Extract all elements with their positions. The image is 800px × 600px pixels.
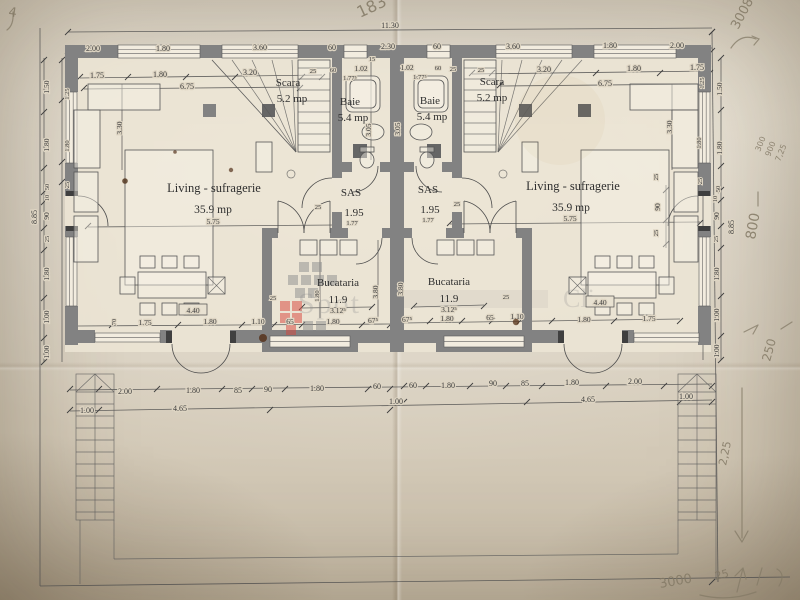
room-area-bucataria-right: 11.9 [440, 293, 459, 305]
dim: 25 [450, 66, 457, 73]
handwritten-note: 250 [759, 337, 778, 363]
kitchen-bay-window [270, 336, 350, 347]
dim-tick [282, 386, 288, 392]
handwritten-note: 800 [743, 212, 763, 241]
sofa [88, 84, 160, 110]
chair [595, 256, 610, 268]
dim-tick [401, 383, 407, 389]
dim: 1.80 [603, 41, 617, 50]
dim-tick [96, 386, 102, 392]
dim: 50 [715, 186, 722, 193]
dim: 6.75 [598, 79, 612, 88]
dim: 25 [454, 201, 461, 208]
dim: 67⁵ [402, 315, 413, 324]
dim: 1.80 [696, 137, 703, 148]
dim: 25 [310, 68, 317, 75]
dim: 1.77 [422, 217, 434, 224]
dim-tick [67, 407, 73, 413]
dim: 1.75 [690, 63, 704, 72]
dim: 4.65 [173, 404, 187, 413]
dim-tick [603, 383, 609, 389]
dim: 1.02 [400, 63, 413, 72]
dim-tick [219, 386, 225, 392]
dim: 1.25 [699, 77, 706, 88]
dim: 25 [478, 67, 485, 74]
dim-tick [96, 407, 102, 413]
dim: 5.75 [206, 217, 219, 226]
dim: 1.00 [42, 310, 51, 323]
chair [639, 256, 654, 268]
chair [140, 303, 155, 315]
dim-tick [67, 386, 73, 392]
room-label-baie-left: Baie [340, 96, 360, 108]
dim: 25 [503, 294, 510, 301]
room-label-scara-right: Scara [480, 76, 505, 88]
dim: 25 [44, 236, 51, 243]
dim: 1.80 [156, 44, 170, 53]
toilet-tank [360, 147, 374, 152]
chair [140, 256, 155, 268]
dim: 3.60 [253, 43, 267, 52]
window [699, 237, 710, 306]
dim: 90 [42, 212, 51, 220]
discoloration [515, 75, 605, 165]
dim: 1.77⁵ [413, 74, 427, 81]
room-area-scara-left: 5.2 mp [277, 93, 308, 105]
dim: 2.00 [118, 387, 132, 396]
dim-tick [709, 579, 715, 585]
dim: 1.50 [715, 82, 724, 95]
dim: 1.80 [203, 317, 216, 326]
kitchen-counter [437, 240, 454, 255]
dim: 85 [234, 386, 242, 395]
room-area-living-right: 35.9 mp [552, 202, 590, 214]
dim: 2.00 [628, 377, 642, 386]
stain [122, 178, 128, 184]
dim: 1.00 [712, 308, 721, 321]
dim: 3.80 [396, 282, 405, 295]
sink [410, 124, 432, 140]
dim: 1.80 [441, 381, 455, 390]
dim: 60 [328, 43, 336, 52]
dim: 3.12⁵ [441, 305, 457, 314]
room-label-scara-left: Scara [276, 77, 301, 89]
toilet [360, 152, 374, 168]
floor-plan-drawing: Spot Cli Living - sufragerie 35.9 mp Liv… [0, 0, 800, 600]
dim-tick [524, 399, 530, 405]
dim: 2.00 [670, 41, 684, 50]
dim: 1.00 [389, 397, 403, 406]
room-area-baie-left: 5.4 mp [338, 112, 369, 124]
dim: 1.80 [440, 314, 453, 323]
kitchen-bay-window [444, 336, 524, 347]
cabinet [674, 172, 698, 212]
chair [120, 277, 135, 294]
window [344, 45, 367, 58]
dim: 1.02 [354, 64, 367, 73]
room-label-living-right: Living - sufragerie [526, 179, 620, 193]
dim: 2.30 [381, 42, 395, 51]
dim: 3.30 [665, 120, 674, 133]
dining-table [138, 272, 206, 298]
dim: 60 [435, 65, 442, 72]
dim: 5.75 [563, 214, 576, 223]
cabinet [674, 216, 698, 262]
dim: 85 [521, 379, 529, 388]
stain [513, 319, 519, 325]
dim: 1.80 [153, 70, 167, 79]
dim-tick [249, 386, 255, 392]
chair [659, 277, 674, 294]
dim: 25 [270, 295, 277, 302]
room-area-living-left: 35.9 mp [194, 204, 232, 216]
dim: 1.80 [326, 317, 339, 326]
window [95, 333, 160, 342]
dim: 8.85 [727, 220, 736, 234]
dim: 70 [111, 319, 118, 326]
dim: 1.50 [42, 80, 51, 93]
room-label-bucataria-left: Bucataria [317, 277, 359, 289]
handwritten-note: 3008 [728, 0, 757, 32]
dim: 3.30 [115, 121, 124, 134]
dim: 1.80 [42, 138, 51, 151]
dim: 50 [44, 184, 51, 191]
dim: 67⁵ [368, 316, 379, 325]
toilet [420, 152, 434, 168]
dim: 1.80 [715, 141, 724, 154]
dim: 1.80 [314, 290, 321, 301]
dim: 8.85 [30, 210, 39, 224]
dim: 4.65 [581, 395, 595, 404]
dim: 1.80 [310, 384, 324, 393]
dim: 4.40 [186, 306, 199, 315]
chair [184, 256, 199, 268]
sofa [630, 84, 698, 110]
handwritten-note: 183 [354, 0, 390, 22]
room-area-sas-left: 1.95 [344, 207, 364, 219]
dim: 10 [44, 195, 51, 202]
dim: 60 [433, 42, 441, 51]
dim: 1.00 [80, 406, 94, 415]
dim: 65 [286, 317, 294, 326]
dim: 3.20 [537, 65, 551, 74]
cabinet [74, 216, 98, 262]
dim: 1.75 [90, 71, 104, 80]
dim: 65 [486, 313, 494, 322]
dim: 90 [264, 385, 272, 394]
dim: 60 [330, 67, 337, 74]
dim: 1.80 [577, 315, 590, 324]
dim-tick [423, 383, 429, 389]
room-label-sas-right: SAS [418, 184, 438, 196]
dim: 60 [373, 382, 381, 391]
dim: 90 [653, 203, 662, 211]
room-label-sas-left: SAS [341, 187, 361, 199]
chair [162, 303, 177, 315]
room-label-bucataria-right: Bucataria [428, 276, 470, 288]
window [699, 92, 710, 163]
sofa [672, 110, 698, 168]
window [634, 333, 699, 342]
dim: 1.80 [42, 267, 51, 280]
dim: 1.75 [642, 314, 655, 323]
kitchen-counter [320, 240, 337, 255]
dim: 1.00 [679, 392, 693, 401]
room-area-scara-right: 5.2 mp [477, 92, 508, 104]
dim: 3.05 [393, 122, 402, 135]
handwritten-note: 2,25 [716, 440, 734, 467]
dim: 15 [369, 56, 376, 63]
toilet-tank [420, 147, 434, 152]
room-area-baie-right: 5.4 mp [417, 111, 448, 123]
dim: 3.80 [371, 285, 380, 298]
dim: 4.40 [593, 298, 606, 307]
dim: 1.25 [64, 88, 71, 99]
kitchen-counter [300, 240, 317, 255]
dim: 25 [315, 204, 322, 211]
kitchen-counter [477, 240, 494, 255]
dim: 3.12⁵ [330, 306, 346, 315]
dim: 90 [489, 379, 497, 388]
cabinet [74, 172, 98, 212]
watermark-blur [390, 290, 548, 308]
stain [173, 150, 177, 154]
kitchen-counter [340, 240, 357, 255]
dim: 1.80 [712, 267, 721, 280]
room-area-sas-right: 1.95 [420, 204, 440, 216]
dim: 1.80 [186, 386, 200, 395]
sofa [74, 110, 100, 168]
dim: 3.60 [506, 42, 520, 51]
dim: 60 [409, 381, 417, 390]
handwritten-note: 3000 [658, 571, 693, 592]
floor-plan-photo: Spot Cli Living - sufragerie 35.9 mp Liv… [0, 0, 800, 600]
dim: 3.05 [364, 123, 373, 136]
dim: 1.75 [138, 318, 151, 327]
dim: 1.10 [251, 317, 264, 326]
dim-tick [661, 383, 667, 389]
dim-tick [387, 407, 393, 413]
dim: 1.77⁵ [343, 75, 357, 82]
chair [617, 256, 632, 268]
dim: 90 [712, 212, 721, 220]
dim: 25 [713, 236, 720, 243]
dim: 1.77 [346, 220, 358, 227]
kitchen-counter [457, 240, 474, 255]
dim: 25 [653, 174, 660, 181]
dim: 1.80 [565, 378, 579, 387]
stair-banister [256, 142, 272, 172]
dim: 1.00 [712, 344, 721, 357]
dim: 25 [64, 182, 71, 189]
dim: 1.80 [627, 64, 641, 73]
room-label-living-left: Living - sufragerie [167, 181, 261, 195]
room-label-baie-right: Baie [420, 95, 440, 107]
handwritten-note: 25 [713, 567, 730, 583]
room-area-bucataria-left: 11.9 [329, 294, 348, 306]
chair [617, 303, 632, 315]
dim: 3.20 [243, 68, 257, 77]
dim: 11.30 [381, 21, 399, 30]
stain [229, 168, 233, 172]
dining-table [588, 272, 656, 298]
dim: 2.00 [86, 44, 100, 53]
dim: 6.75 [180, 82, 194, 91]
dim: 10 [712, 196, 719, 203]
chair [162, 256, 177, 268]
stain [259, 334, 267, 342]
dim: 1.80 [64, 140, 71, 151]
dim: 25 [653, 230, 660, 237]
dim: 1.00 [42, 345, 51, 358]
dim: 25 [697, 178, 704, 185]
